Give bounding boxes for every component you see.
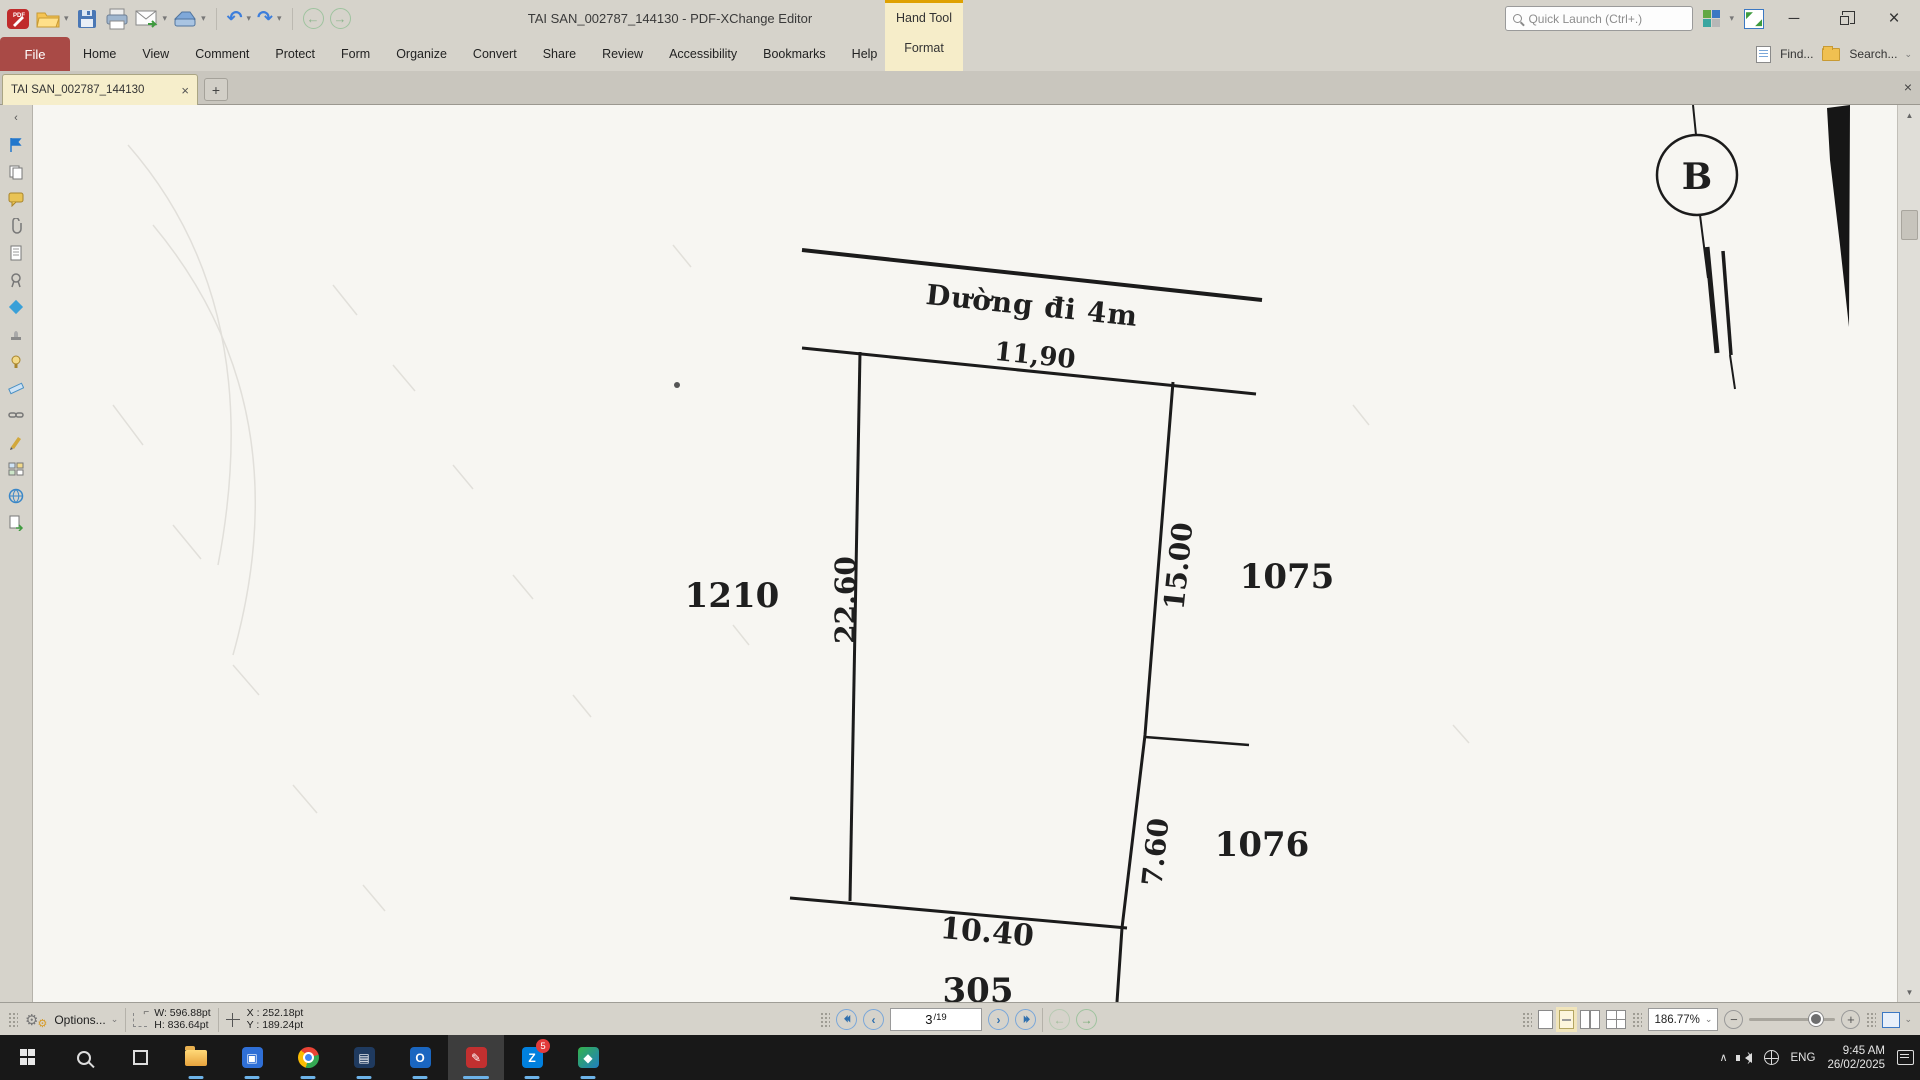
menu-file[interactable]: File [0, 37, 70, 71]
export-icon[interactable] [7, 514, 25, 532]
outlook-icon: O [410, 1047, 431, 1068]
status-separator [1042, 1008, 1043, 1032]
menu-accessibility[interactable]: Accessibility [656, 37, 750, 71]
scan-edge-artifact [1827, 105, 1850, 327]
media-app-icon: ◆ [578, 1047, 599, 1068]
continuous-view-icon[interactable] [1559, 1010, 1574, 1029]
fit-page-caret[interactable]: ⌄ [1904, 1014, 1912, 1025]
page-size-icon [133, 1013, 147, 1027]
start-button[interactable] [0, 1035, 56, 1080]
panes-sidebar: ‹ [0, 105, 33, 1002]
cadastral-drawing: Dường đi 4m 11,90 1210 22.60 15.00 1075 … [33, 105, 1897, 1002]
javascript-icon[interactable] [7, 487, 25, 505]
search-label[interactable]: Search... [1849, 47, 1897, 61]
grip-handle [820, 1012, 830, 1028]
two-page-view-icon[interactable] [1580, 1010, 1600, 1029]
zoom-slider[interactable] [1749, 1018, 1835, 1021]
print-icon[interactable] [105, 7, 129, 31]
language-indicator[interactable]: ENG [1791, 1052, 1816, 1064]
task-view-button[interactable] [112, 1035, 168, 1080]
menu-form[interactable]: Form [328, 37, 383, 71]
multi-page-view-icon[interactable] [1606, 1010, 1626, 1029]
chrome-button[interactable] [280, 1035, 336, 1080]
zoom-level-select[interactable]: 186.77% ⌄ [1648, 1008, 1718, 1031]
document-tab-title: TAI SAN_002787_144130 [11, 84, 175, 96]
form-fields-icon[interactable] [7, 460, 25, 478]
ui-options-icon[interactable] [1703, 10, 1721, 28]
taskbar-app-3[interactable]: ◆ [560, 1035, 616, 1080]
parcel-right-edge [1117, 382, 1173, 1002]
cursor-position-readout: X : 252.18pt Y : 189.24pt [247, 1008, 304, 1031]
first-page-button[interactable]: ⏴⏴ [836, 1009, 857, 1030]
history-back-icon[interactable]: ← [303, 8, 324, 29]
tab-close-icon[interactable]: × [181, 83, 189, 98]
task-view-icon [133, 1050, 148, 1065]
options-button[interactable]: Options... [54, 1013, 105, 1027]
folder-icon [185, 1050, 207, 1066]
dim-right-lower: 7.60 [1136, 816, 1176, 887]
document-tab[interactable]: TAI SAN_002787_144130 × [2, 74, 198, 105]
menu-help[interactable]: Help [839, 37, 891, 71]
page-size-readout: W: 596.88pt H: 836.64pt [154, 1008, 210, 1031]
status-left: ⚙⚙ Options... ⌄ W: 596.88pt H: 836.64pt … [8, 1003, 303, 1036]
tray-expand-icon[interactable]: ∧ [1719, 1051, 1727, 1064]
quick-access-toolbar: PDF ▾ ▾ ▾ [0, 0, 351, 37]
redo-icon[interactable]: ↷ [257, 9, 273, 28]
single-page-view-icon[interactable] [1538, 1010, 1553, 1029]
scan-noise [113, 145, 1469, 911]
previous-view-button[interactable]: ← [1049, 1009, 1070, 1030]
road-name-label: Dường đi 4m [924, 278, 1139, 333]
notification-badge: 5 [536, 1039, 550, 1053]
redo-dropdown-caret[interactable]: ▾ [277, 13, 282, 24]
total-pages: /19 [934, 1012, 947, 1023]
scanner-icon[interactable] [173, 7, 197, 31]
last-page-button[interactable]: ⏵⏵ [1015, 1009, 1036, 1030]
scroll-up-icon[interactable]: ▲ [1898, 105, 1920, 125]
parcel-number-upper-right: 1075 [1240, 557, 1335, 597]
menu-convert[interactable]: Convert [460, 37, 530, 71]
cursor-x: X : 252.18pt [247, 1008, 304, 1020]
open-file-icon[interactable] [36, 7, 60, 31]
document-tab-bar: TAI SAN_002787_144130 × + × [0, 71, 1920, 105]
status-separator [218, 1008, 219, 1032]
pdf-app-icon: ✎ [466, 1047, 487, 1068]
system-tray: ∧ ENG 9:45 AM 26/02/2025 [1719, 1035, 1914, 1080]
pdf-xchange-window: PDF ▾ ▾ ▾ [0, 0, 1920, 1080]
search-folder-icon[interactable] [1822, 48, 1840, 61]
content-icon[interactable] [7, 244, 25, 262]
grip-handle [1522, 1012, 1532, 1028]
titlebar-right: Quick Launch (Ctrl+.) ▾ ◤ ◢ ─ × [1505, 0, 1914, 37]
taskbar-app-1[interactable]: ▣ [224, 1035, 280, 1080]
highlight-icon[interactable] [7, 433, 25, 451]
zoom-out-button[interactable]: − [1724, 1010, 1743, 1029]
chrome-icon [298, 1047, 319, 1068]
destinations-icon[interactable] [7, 352, 25, 370]
collapse-pane-icon[interactable]: ‹ [7, 109, 25, 127]
email-icon[interactable] [135, 7, 159, 31]
menu-comment[interactable]: Comment [182, 37, 262, 71]
network-icon[interactable] [1764, 1050, 1779, 1065]
new-tab-button[interactable]: + [204, 78, 228, 101]
grip-handle [1866, 1012, 1876, 1028]
attachments-icon[interactable] [7, 217, 25, 235]
taskbar-search-button[interactable] [56, 1035, 112, 1080]
zoom-slider-knob[interactable] [1809, 1012, 1823, 1026]
grip-handle [1632, 1012, 1642, 1028]
previous-page-button[interactable]: ‹ [863, 1009, 884, 1030]
windows-logo-icon [20, 1049, 37, 1066]
dark-app-icon: ▤ [354, 1047, 375, 1068]
format-label[interactable]: Format [885, 41, 963, 55]
menu-protect[interactable]: Protect [262, 37, 328, 71]
header: PDF ▾ ▾ ▾ [0, 0, 1920, 71]
fit-page-icon[interactable] [1882, 1012, 1900, 1028]
dim-cutoff: 305 [943, 971, 1014, 1002]
layers-icon[interactable] [7, 298, 25, 316]
page-height: H: 836.64pt [154, 1020, 210, 1032]
options-caret[interactable]: ⌄ [111, 1014, 119, 1025]
parcel-number-left: 1210 [685, 576, 780, 616]
open-dropdown-caret[interactable]: ▾ [64, 13, 69, 24]
find-label[interactable]: Find... [1780, 47, 1813, 61]
hand-tool-tab[interactable]: Hand Tool Format [885, 0, 963, 71]
page-number-input[interactable]: 3 /19 [890, 1008, 982, 1031]
dim-right-upper: 15.00 [1158, 521, 1200, 612]
notifications-icon[interactable] [1897, 1050, 1914, 1065]
menu-bookmarks[interactable]: Bookmarks [750, 37, 839, 71]
dim-left-edge: 22.60 [829, 556, 862, 644]
thumbnails-icon[interactable] [7, 163, 25, 181]
save-icon[interactable] [75, 7, 99, 31]
gear-icon[interactable]: ⚙ [25, 1011, 38, 1029]
measure-icon[interactable] [7, 379, 25, 397]
menu-review[interactable]: Review [589, 37, 656, 71]
toolbar-separator [292, 8, 293, 30]
gear-small-icon: ⚙ [37, 1017, 47, 1030]
vertical-scrollbar[interactable]: ▲ ▼ [1897, 105, 1920, 1002]
fullscreen-icon[interactable]: ◤ ◢ [1744, 9, 1764, 29]
search-icon [1513, 14, 1522, 23]
cursor-position-icon [226, 1013, 240, 1027]
email-dropdown-caret[interactable]: ▾ [163, 13, 168, 24]
hand-tool-label: Hand Tool [885, 11, 963, 25]
menu-share[interactable]: Share [530, 37, 589, 71]
toolbar-separator [216, 8, 217, 30]
status-bar: ⚙⚙ Options... ⌄ W: 596.88pt H: 836.64pt … [0, 1002, 1920, 1035]
grip-handle [8, 1012, 18, 1028]
status-separator [125, 1008, 126, 1032]
marker-label: B [1682, 156, 1712, 198]
taskbar-app-2[interactable]: ▤ [336, 1035, 392, 1080]
current-page: 3 [925, 1012, 932, 1027]
menu-home[interactable]: Home [70, 37, 129, 71]
page-navigation: ⏴⏴ ‹ 3 /19 › ⏵⏵ ← → [820, 1003, 1097, 1036]
search-caret[interactable]: ⌄ [1904, 49, 1912, 60]
quick-launch-placeholder: Quick Launch (Ctrl+.) [1528, 12, 1642, 26]
bookmarks-icon[interactable] [7, 136, 25, 154]
ui-options-caret[interactable]: ▾ [1729, 13, 1734, 24]
zoom-in-button[interactable]: + [1841, 1010, 1860, 1029]
signatures-icon[interactable] [7, 271, 25, 289]
close-document-icon[interactable]: × [1904, 79, 1912, 95]
clock[interactable]: 9:45 AM 26/02/2025 [1827, 1044, 1885, 1072]
restore-button[interactable] [1824, 4, 1864, 34]
minimize-button[interactable]: ─ [1774, 4, 1814, 34]
tray-date: 26/02/2025 [1827, 1058, 1885, 1072]
file-explorer-button[interactable] [168, 1035, 224, 1080]
zalo-button[interactable]: Z5 [504, 1035, 560, 1080]
app-logo-icon: PDF [6, 7, 30, 31]
page-width: W: 596.88pt [154, 1008, 210, 1020]
comments-icon[interactable] [7, 190, 25, 208]
undo-icon[interactable]: ↶ [227, 9, 243, 28]
scanner-dropdown-caret[interactable]: ▾ [201, 13, 206, 24]
search-icon [77, 1051, 91, 1065]
zoom-caret: ⌄ [1705, 1014, 1713, 1025]
scrollbar-thumb[interactable] [1901, 210, 1918, 240]
find-icon[interactable] [1756, 46, 1771, 63]
undo-dropdown-caret[interactable]: ▾ [247, 13, 252, 24]
stamps-icon[interactable] [7, 325, 25, 343]
pdf-xchange-taskbar-button[interactable]: ✎ [448, 1035, 504, 1080]
windows-taskbar: ▣ ▤ O ✎ Z5 ◆ ∧ ENG 9:45 AM 26/02/2025 [0, 1035, 1920, 1080]
dim-bottom-edge: 10.40 [939, 911, 1036, 954]
quick-launch-input[interactable]: Quick Launch (Ctrl+.) [1505, 6, 1693, 31]
next-page-button[interactable]: › [988, 1009, 1009, 1030]
volume-icon[interactable] [1740, 1053, 1752, 1063]
history-forward-icon[interactable]: → [330, 8, 351, 29]
status-right: 186.77% ⌄ − + ⌄ [1522, 1003, 1912, 1036]
tray-time: 9:45 AM [1827, 1044, 1885, 1058]
neighbor-boundary-tick [1145, 737, 1249, 745]
close-button[interactable]: × [1874, 4, 1914, 34]
zoom-value: 186.77% [1654, 1014, 1699, 1026]
menu-view[interactable]: View [129, 37, 182, 71]
stray-dot [674, 382, 680, 388]
parcel-number-lower-right: 1076 [1215, 825, 1310, 865]
outlook-button[interactable]: O [392, 1035, 448, 1080]
pole-symbol [1693, 105, 1735, 389]
cursor-y: Y : 189.24pt [247, 1020, 304, 1032]
next-view-button[interactable]: → [1076, 1009, 1097, 1030]
scroll-down-icon[interactable]: ▼ [1898, 982, 1920, 1002]
links-icon[interactable] [7, 406, 25, 424]
blue-app-icon: ▣ [242, 1047, 263, 1068]
document-canvas[interactable]: Dường đi 4m 11,90 1210 22.60 15.00 1075 … [33, 105, 1897, 1002]
find-search-group: Find... Search... ⌄ [1756, 37, 1912, 71]
menu-organize[interactable]: Organize [383, 37, 460, 71]
